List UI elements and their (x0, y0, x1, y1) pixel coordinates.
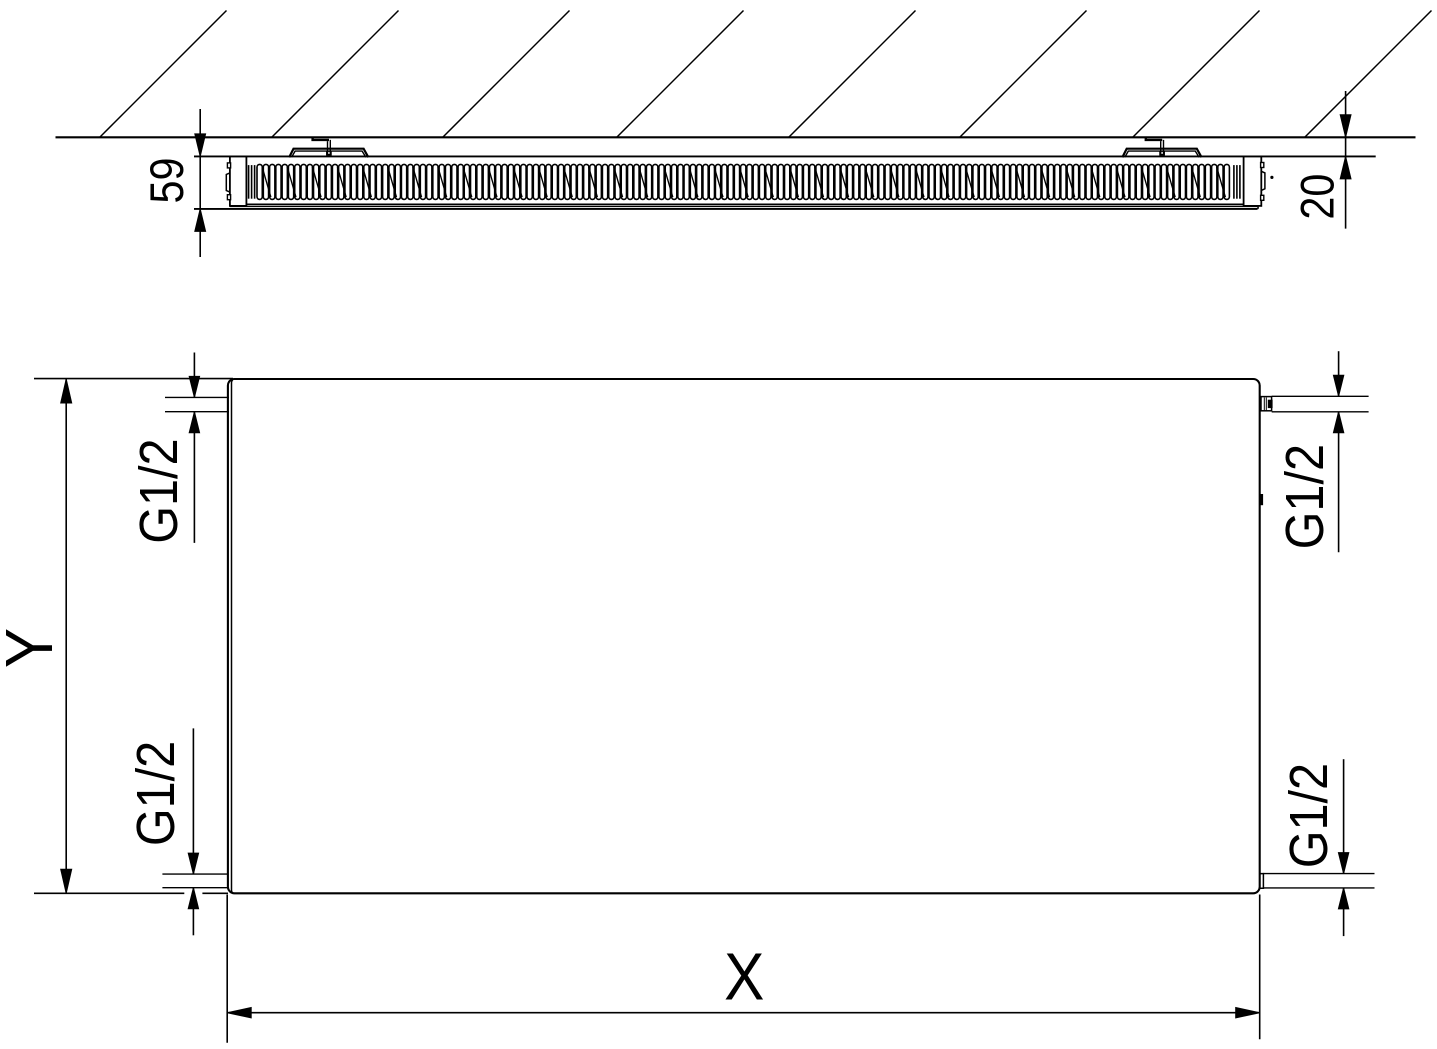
svg-text:59: 59 (142, 158, 194, 204)
svg-text:Y: Y (0, 628, 67, 668)
svg-text:20: 20 (1292, 174, 1344, 220)
svg-text:X: X (724, 938, 764, 1014)
svg-text:G1/2: G1/2 (1278, 763, 1339, 868)
svg-text:G1/2: G1/2 (128, 438, 189, 543)
svg-text:G1/2: G1/2 (1274, 444, 1335, 549)
svg-text:G1/2: G1/2 (125, 741, 186, 846)
